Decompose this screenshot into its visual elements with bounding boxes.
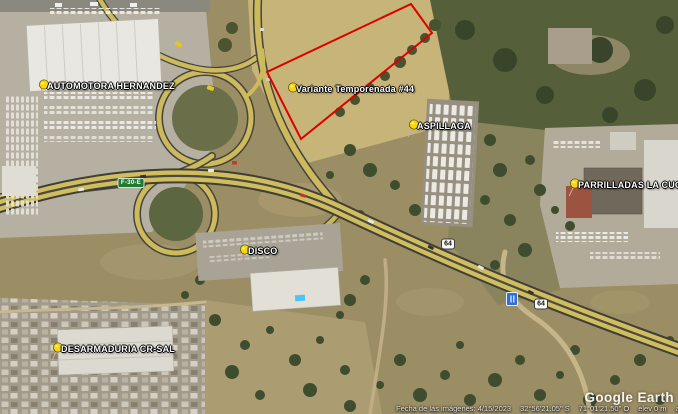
route-shield-64[interactable]: 64 — [534, 299, 548, 310]
placemark-label: Variante Temporenada #44 — [296, 84, 414, 94]
status-bar: Fecha de las imágenes: 4/15/2023 32°56'2… — [396, 404, 676, 413]
placemark-label: AUTOMOTORA HERNANDEZ — [47, 81, 175, 91]
placemark-label: DISCO — [248, 246, 278, 256]
imagery-date: Fecha de las imágenes: 4/15/2023 — [396, 404, 511, 413]
placemark-label: DESARMADURIA CR-SAL — [61, 344, 175, 354]
latitude-readout: 32°56'21.05" S — [520, 404, 570, 413]
route-shield-64[interactable]: 64 — [441, 239, 455, 250]
elevation-readout: elev 0 m — [638, 404, 666, 413]
google-earth-watermark: Google Earth — [584, 390, 674, 405]
longitude-readout: 71°01'21.50" O — [579, 404, 629, 413]
placemark-label: ASPILLAGA — [417, 121, 471, 131]
restaurant-poi-icon[interactable] — [506, 292, 518, 306]
placemark-label: PARRILLADAS LA CUCA — [578, 180, 678, 190]
route-shield-f30e[interactable]: F-30-E — [118, 178, 145, 188]
fork-knife-glyph — [509, 295, 516, 303]
google-earth-viewport[interactable]: AUTOMOTORA HERNANDEZ Variante Temporenad… — [0, 0, 678, 414]
